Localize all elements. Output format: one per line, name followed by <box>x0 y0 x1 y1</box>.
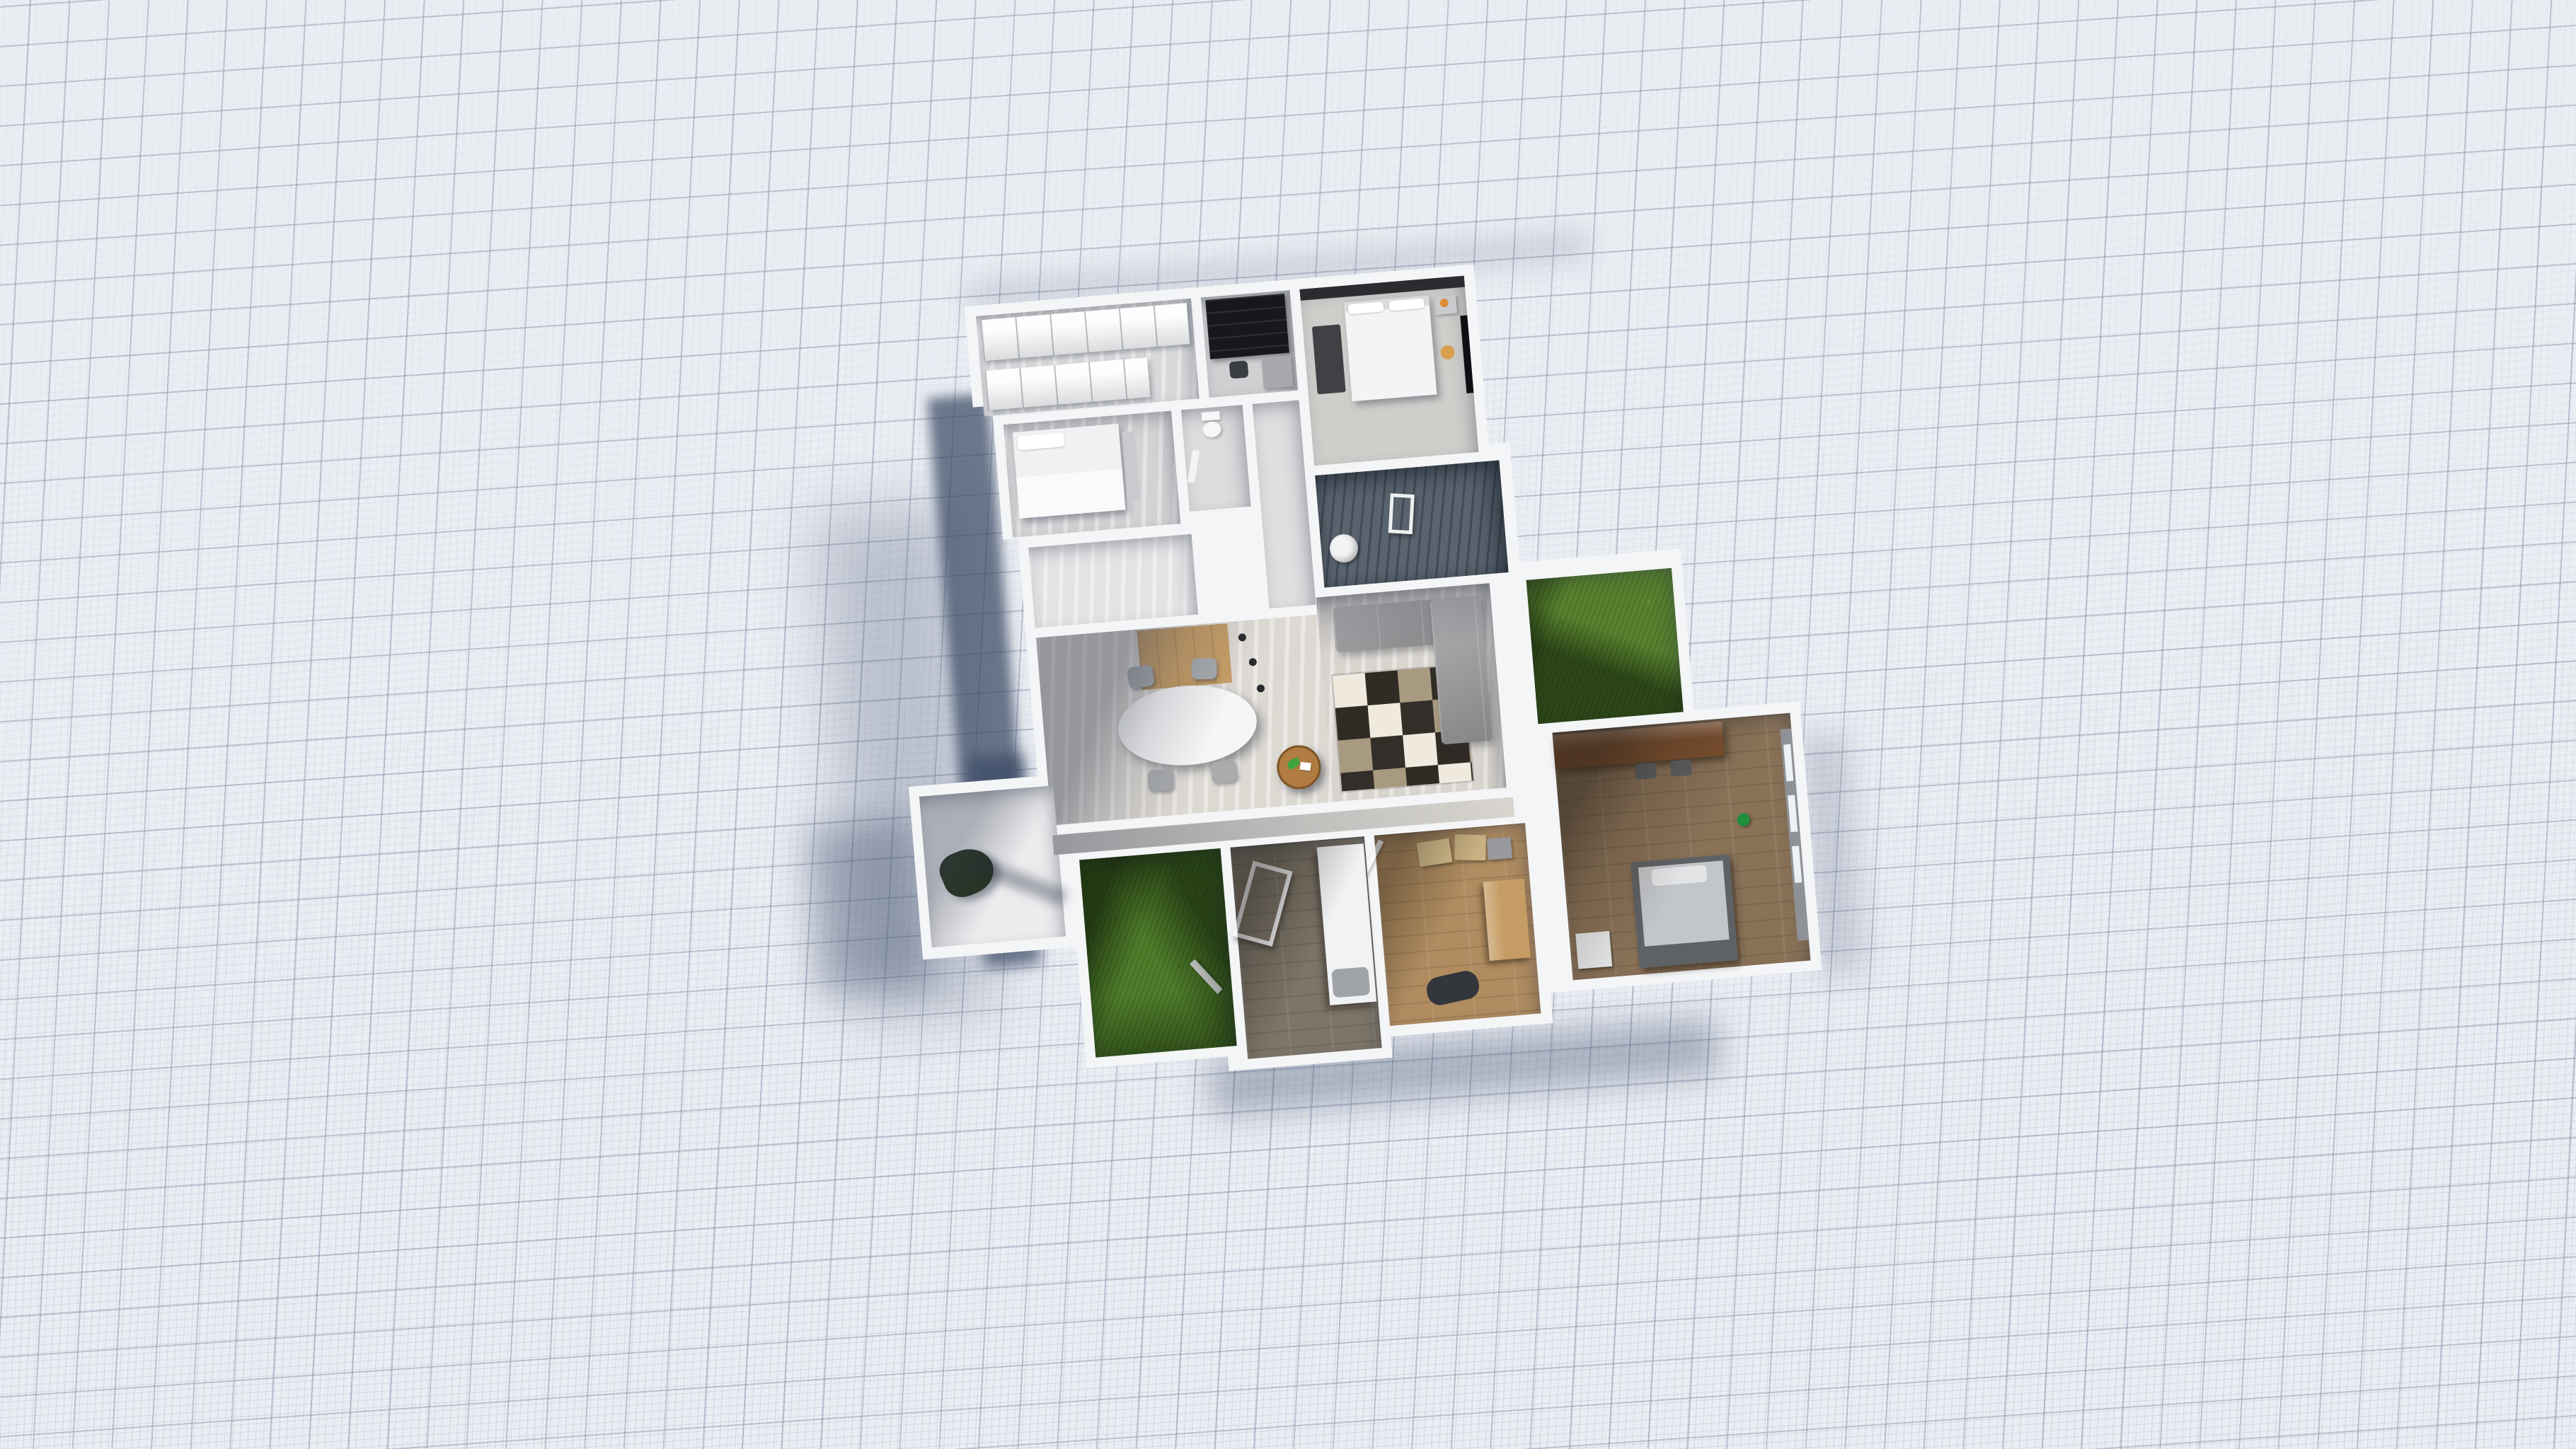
side-unit[interactable] <box>1575 931 1612 969</box>
storage-box[interactable] <box>1417 838 1453 867</box>
room-spare[interactable] <box>1028 534 1198 628</box>
gray-chair[interactable] <box>1635 763 1657 780</box>
guest-bed[interactable] <box>1013 424 1126 519</box>
room-guest-bedroom[interactable] <box>1004 411 1180 538</box>
room-bathroom[interactable] <box>1315 460 1508 587</box>
room-living[interactable] <box>1316 583 1507 802</box>
pendant-light[interactable] <box>1257 684 1265 693</box>
room-master-bedroom[interactable] <box>1299 276 1478 466</box>
leaning-frame[interactable] <box>1233 861 1293 947</box>
pendant-light[interactable] <box>1248 658 1257 666</box>
door-leaf[interactable] <box>1190 959 1223 994</box>
room-entry-porch[interactable] <box>919 785 1066 947</box>
wardrobe-row[interactable] <box>984 357 1150 410</box>
room-dining-area[interactable] <box>1036 614 1333 825</box>
dining-chair[interactable] <box>1191 658 1217 679</box>
wall-mirror[interactable] <box>1188 450 1200 483</box>
pendant-light[interactable] <box>1238 633 1246 642</box>
lawn-shadow <box>1526 568 1684 724</box>
gray-chair[interactable] <box>1669 759 1692 776</box>
desk-shelving-unit[interactable] <box>1205 294 1289 359</box>
dining-chair[interactable] <box>1127 664 1155 689</box>
room-walk-in-closet[interactable] <box>976 299 1200 417</box>
room-bedroom-small[interactable] <box>1230 836 1381 1059</box>
pillow <box>1347 301 1384 314</box>
room-courtyard-right[interactable] <box>1526 568 1684 724</box>
office-cabinet[interactable] <box>1261 355 1293 388</box>
wood-dresser[interactable] <box>1483 879 1531 961</box>
clothes-pile[interactable] <box>1424 969 1481 1008</box>
dining-chair[interactable] <box>1148 769 1174 791</box>
gray-pillow <box>1331 966 1370 998</box>
gray-bed[interactable] <box>1631 854 1738 968</box>
3d-viewport[interactable] <box>0 0 2576 1449</box>
pillow <box>1388 298 1425 311</box>
open-book <box>1300 762 1311 771</box>
dining-chair[interactable] <box>1210 760 1238 785</box>
porch-plant[interactable] <box>935 841 1001 904</box>
plant-leaf <box>1286 757 1301 770</box>
room-courtyard-left[interactable] <box>1079 848 1236 1058</box>
office-chair[interactable] <box>1229 360 1249 379</box>
green-bin[interactable] <box>1737 813 1750 826</box>
laundry-basket[interactable] <box>1328 533 1359 563</box>
lawn-shadow <box>1079 848 1236 1058</box>
storage-box[interactable] <box>1454 834 1486 860</box>
duvet-fold <box>1016 469 1125 519</box>
room-wc[interactable] <box>1181 405 1251 512</box>
room-bedroom-large[interactable] <box>1553 713 1811 981</box>
storage-box[interactable] <box>1487 837 1512 860</box>
pillow <box>1017 432 1064 450</box>
master-bed[interactable] <box>1344 296 1437 401</box>
dining-table[interactable] <box>1115 680 1260 770</box>
toilet-bowl[interactable] <box>1202 421 1222 438</box>
tan-pouf[interactable] <box>1440 345 1456 360</box>
towel-chair[interactable] <box>1388 493 1415 534</box>
bed-end-bench[interactable] <box>1122 431 1140 500</box>
toilet-tank[interactable] <box>1201 411 1220 421</box>
bed-bench[interactable] <box>1312 324 1346 394</box>
room-bedroom-middle[interactable] <box>1374 823 1541 1026</box>
room-office-nook[interactable] <box>1201 290 1298 398</box>
